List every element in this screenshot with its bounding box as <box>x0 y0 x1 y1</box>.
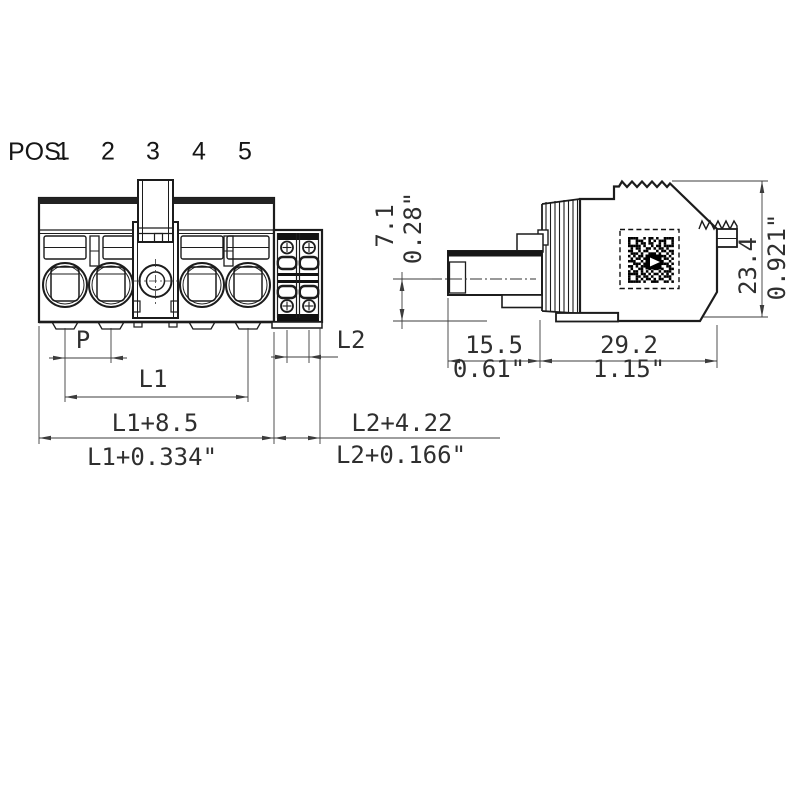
dim-l2-total-inch: L2+0.166" <box>336 443 466 467</box>
dim-body-length-inch: 1.15" <box>593 357 665 381</box>
dim-pin-length-inch: 0.61" <box>453 357 525 381</box>
dim-l1-label: L1 <box>139 367 168 391</box>
foot-plate <box>556 313 618 322</box>
position-number-1: 1 <box>56 140 70 165</box>
coding-tab <box>138 180 173 242</box>
front-view <box>39 180 274 329</box>
position-number-5: 5 <box>238 140 252 165</box>
position-number-3: 3 <box>146 140 160 165</box>
dim-height-mm: 23.4 <box>736 237 760 295</box>
side-view <box>430 182 737 322</box>
position-number-4: 4 <box>192 140 206 165</box>
dim-l1-total-mm: L1+8.5 <box>112 411 199 435</box>
position-number-2: 2 <box>101 140 115 165</box>
dim-body-length-mm: 29.2 <box>600 333 658 357</box>
dim-pitch-label: P <box>76 328 90 352</box>
ribbed-collar <box>538 199 580 314</box>
pin-barrel <box>430 234 543 308</box>
housing-outline <box>580 182 717 322</box>
dim-height-inch: 0.921" <box>765 214 789 301</box>
dim-pin-height-mm: 7.1 <box>373 204 397 247</box>
dim-pin-height-inch: 0.28" <box>401 192 425 264</box>
dim-pin-length-mm: 15.5 <box>465 333 523 357</box>
dim-l2-total-mm: L2+4.22 <box>351 411 452 435</box>
technical-drawing <box>0 0 800 800</box>
dim-l2-label: L2 <box>337 328 366 352</box>
dim-l1-total-inch: L1+0.334" <box>87 445 217 469</box>
l2-attachment-block <box>272 230 322 328</box>
